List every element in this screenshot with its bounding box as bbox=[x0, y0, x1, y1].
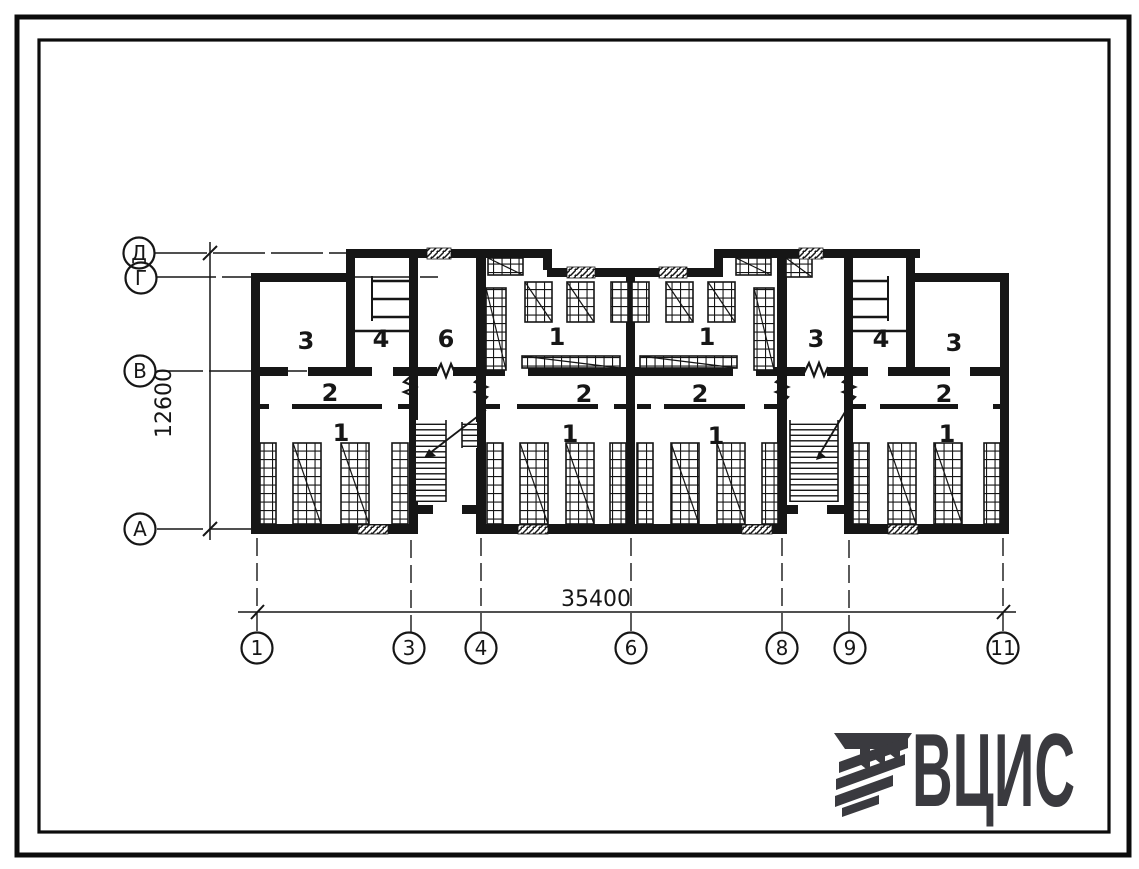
room-label: 3 bbox=[808, 325, 825, 353]
room-label: 3 bbox=[298, 327, 315, 355]
height-dimension-label: 12600 bbox=[152, 368, 177, 438]
grid-label: 9 bbox=[844, 636, 857, 660]
room-label: 2 bbox=[322, 379, 339, 407]
grid-label: 6 bbox=[625, 636, 638, 660]
room-label: 4 bbox=[873, 325, 890, 353]
room-label: 2 bbox=[936, 380, 953, 408]
axis-label: В bbox=[133, 359, 147, 383]
vcis-logo: ВЦИС bbox=[834, 713, 1075, 829]
stair-flight bbox=[790, 420, 838, 502]
stair-flight bbox=[416, 420, 446, 502]
room-label: 1 bbox=[562, 420, 579, 448]
grid-label: 1 bbox=[251, 636, 264, 660]
room-label: 1 bbox=[549, 323, 566, 351]
grid-label: 8 bbox=[776, 636, 789, 660]
logo-text: ВЦИС bbox=[912, 713, 1075, 829]
axis-label: А bbox=[133, 517, 147, 541]
room-label: 1 bbox=[333, 419, 350, 447]
axis-label: Д bbox=[131, 241, 147, 265]
ladder-right bbox=[851, 276, 906, 331]
staircase-right bbox=[790, 412, 845, 502]
vcis-logo-icon bbox=[834, 733, 912, 817]
grid-label: 4 bbox=[475, 636, 488, 660]
room-label: 3 bbox=[946, 329, 963, 357]
scanned-drawing-page: Д Г В А 12600 35400 1 3 4 6 8 9 11 bbox=[0, 0, 1139, 869]
axis-label: Г bbox=[135, 266, 147, 290]
room-label: 1 bbox=[708, 422, 725, 450]
floor-plan-drawing: Д Г В А 12600 35400 1 3 4 6 8 9 11 bbox=[0, 0, 1139, 869]
room-label: 2 bbox=[576, 380, 593, 408]
grid-bottom-labels: 35400 1 3 4 6 8 9 11 bbox=[251, 587, 1016, 660]
grid-label: 3 bbox=[403, 636, 416, 660]
staircase-left bbox=[416, 410, 486, 502]
ladder-left bbox=[354, 276, 409, 331]
room-label: 4 bbox=[373, 325, 390, 353]
room-label: 6 bbox=[438, 325, 455, 353]
width-dimension-label: 35400 bbox=[561, 587, 631, 612]
room-label: 2 bbox=[692, 380, 709, 408]
joint-zigzag-h bbox=[436, 364, 455, 377]
joint-zigzag-h bbox=[804, 363, 828, 376]
room-label: 1 bbox=[939, 420, 956, 448]
grid-label: 11 bbox=[990, 636, 1015, 660]
grid-extension-lines bbox=[257, 538, 1003, 632]
room-label: 1 bbox=[699, 323, 716, 351]
